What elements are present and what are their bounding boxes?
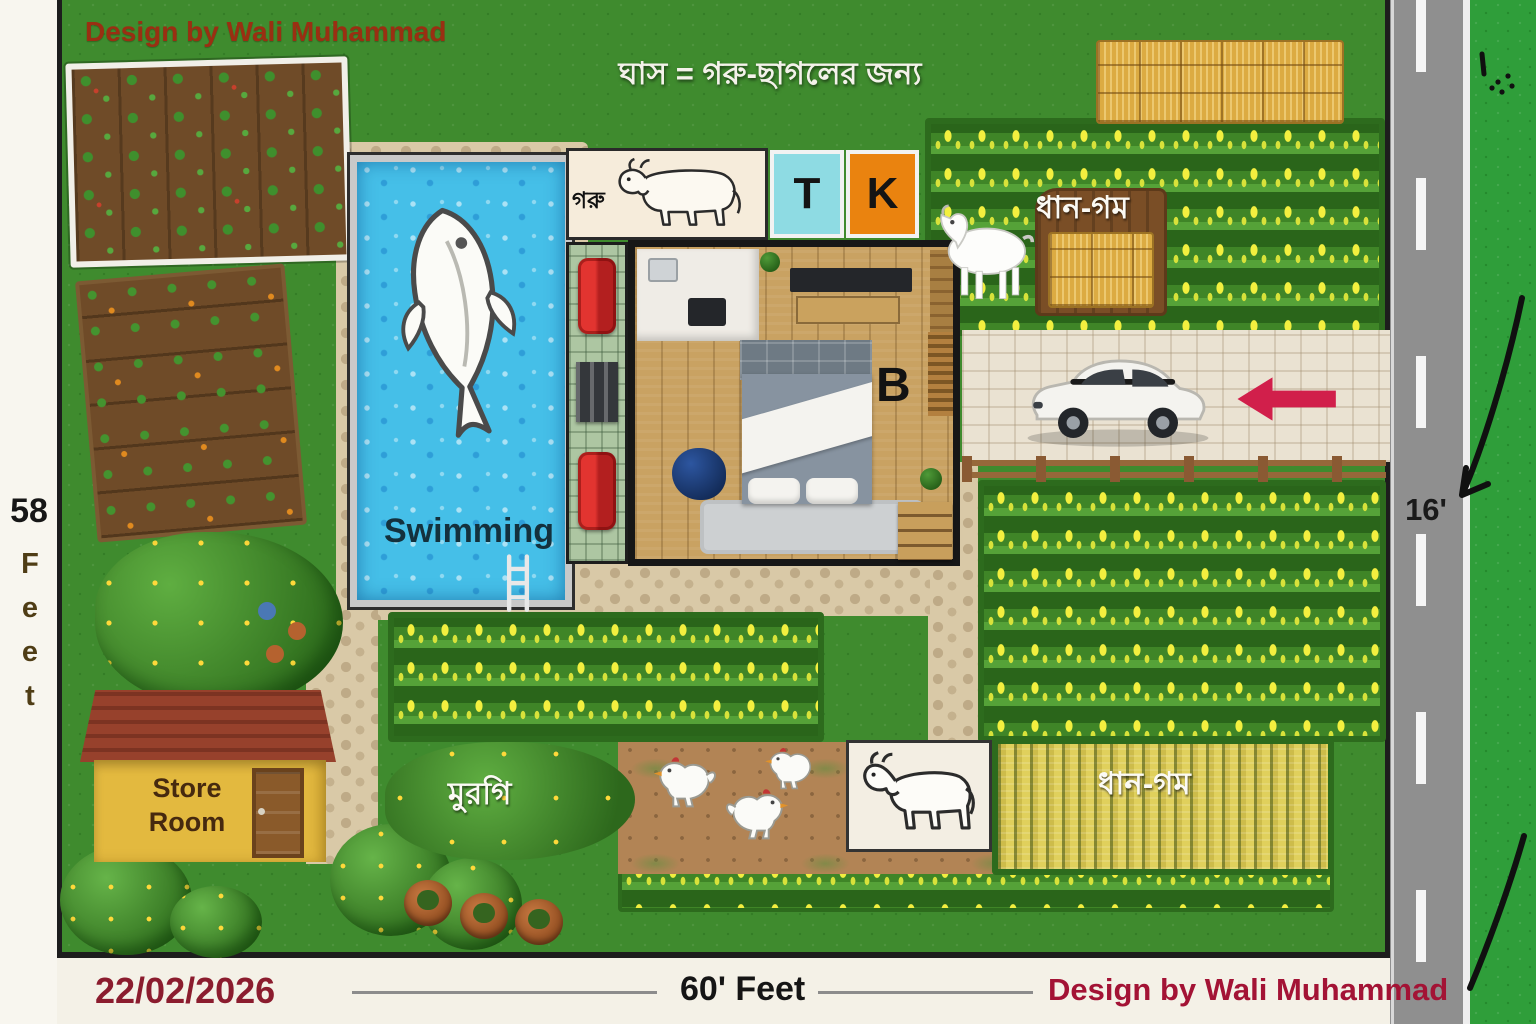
kitchen-room-box: K	[846, 150, 919, 238]
small-pot	[288, 622, 306, 640]
chicken-icon	[648, 750, 720, 818]
houseplant	[920, 468, 942, 490]
sketch-arrow-icon	[1452, 290, 1532, 515]
dimension-line	[818, 991, 1033, 994]
houseplant	[760, 252, 780, 272]
wooden-fence	[962, 456, 1386, 482]
farm-plan-canvas: Store Room Swimming গরু T K	[0, 0, 1536, 1024]
calf-icon	[856, 748, 982, 842]
red-bench	[578, 258, 616, 334]
chicken-icon	[760, 742, 820, 798]
plan-date: 22/02/2026	[95, 970, 275, 1012]
plot-width-label: 60' Feet	[680, 970, 805, 1009]
kitchen-stove	[688, 298, 726, 326]
plot-depth-unit: Feet	[13, 548, 46, 768]
designer-credit-top: Design by Wali Muhammad	[85, 16, 446, 48]
plate-blue	[258, 602, 276, 620]
terracotta-pot	[404, 880, 452, 926]
pool-ladder-icon	[497, 553, 539, 615]
pillow	[806, 478, 858, 504]
terracotta-pot	[515, 899, 563, 945]
chicken-area-label: মুরগি	[448, 770, 511, 822]
hay-in-shed	[1048, 232, 1154, 308]
car-icon	[1018, 346, 1218, 452]
toilet-label: T	[794, 169, 821, 219]
fenced-vegetable-garden	[65, 56, 352, 267]
terracotta-pot	[460, 893, 508, 939]
stairs	[898, 502, 952, 560]
crop-field-right	[978, 480, 1386, 742]
swimming-label: Swimming	[384, 512, 554, 551]
goat-icon	[918, 204, 1043, 304]
store-room-roof	[80, 690, 336, 762]
raised-garden-beds	[75, 263, 307, 542]
road-width-label: 16'	[1394, 492, 1458, 528]
door-knob	[258, 808, 265, 815]
window-blind	[928, 332, 953, 416]
dimension-line	[352, 991, 657, 994]
crop-field-middle	[388, 612, 824, 742]
paddy-wheat-label-top: ধান-গম	[1036, 184, 1129, 236]
grass-note-label: ঘাস = গরু-ছাগলের জন্য	[555, 50, 985, 102]
plot-depth-value: 58	[6, 492, 52, 531]
cow-pen-label: গরু	[572, 182, 605, 221]
bedroom-label: B	[876, 358, 911, 413]
red-bench	[578, 452, 616, 530]
designer-credit-bottom: Design by Wali Muhammad	[1048, 972, 1448, 1008]
direction-arrow-icon	[1235, 374, 1340, 424]
pillow	[748, 478, 800, 504]
sketch-mark-icon	[1468, 48, 1528, 108]
small-pot	[266, 645, 284, 663]
sketch-arrow-icon	[1458, 830, 1536, 1000]
flower-bushes	[95, 532, 343, 707]
cow-icon	[608, 154, 763, 236]
hay-bale-stack	[1096, 40, 1344, 124]
store-room-label: Store Room	[112, 772, 262, 840]
paddy-wheat-label-bottom: ধান-গম	[1098, 760, 1191, 812]
fruit-tree	[170, 886, 262, 958]
bed-sheet	[742, 378, 872, 475]
kitchen-label: K	[867, 169, 899, 219]
rug	[700, 500, 924, 554]
tv-screen	[790, 268, 912, 292]
toilet-room-box: T	[770, 150, 844, 238]
veranda-cabinet	[576, 362, 618, 422]
bean-bag-chair	[672, 448, 726, 500]
tv-cabinet	[796, 296, 900, 324]
cobble-path-below-house	[575, 564, 930, 616]
kitchen-sink	[648, 258, 678, 282]
